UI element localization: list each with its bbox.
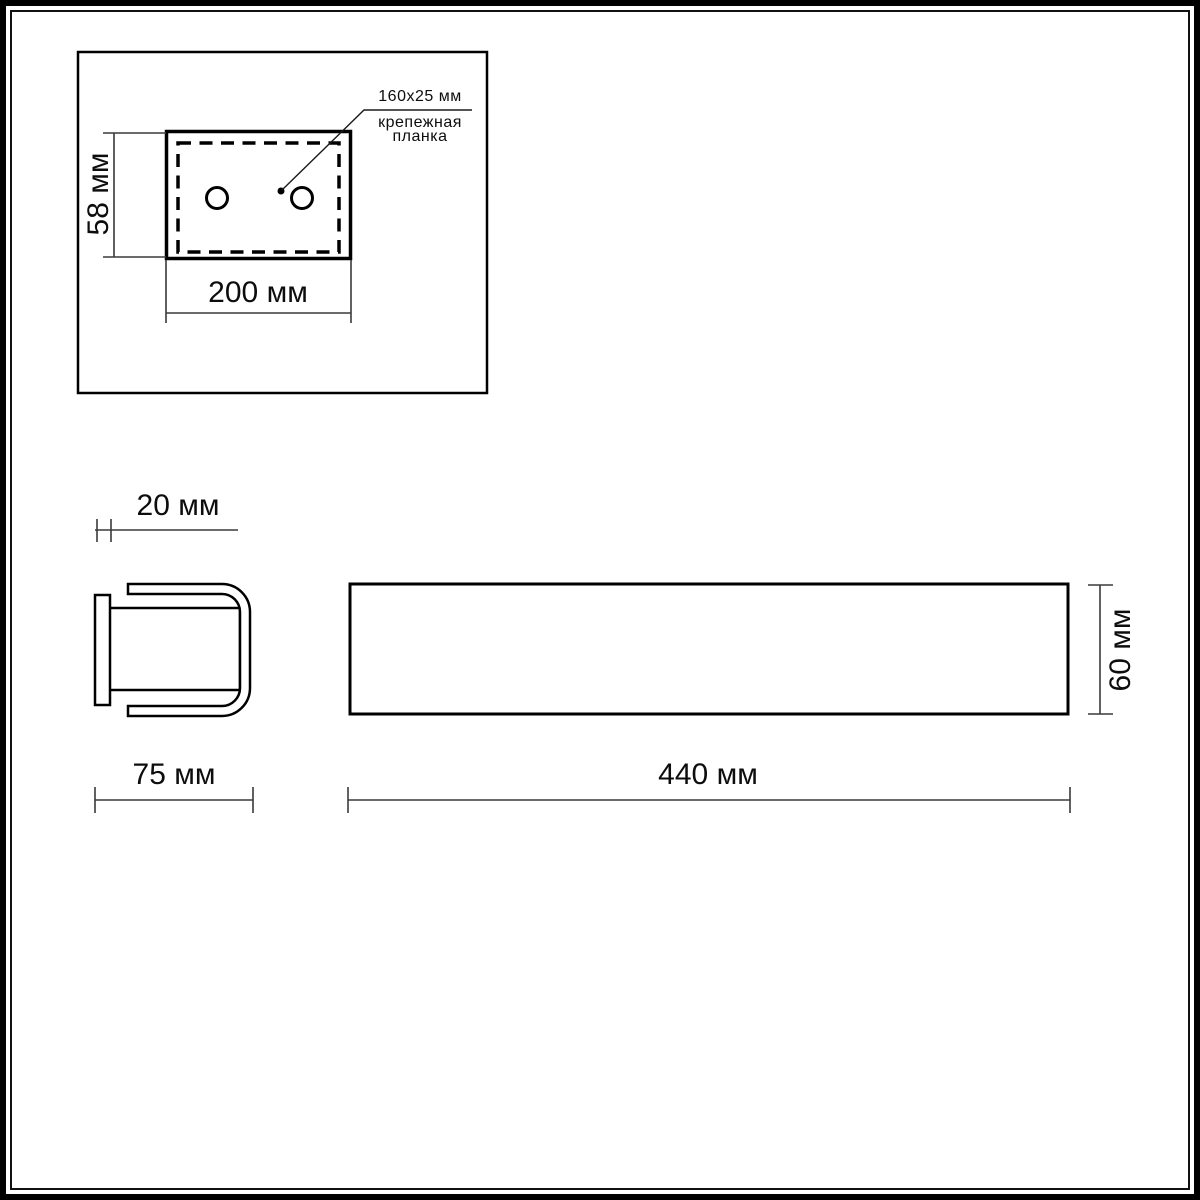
dim-label-58mm: 58 мм	[84, 153, 114, 236]
callout-name-label: крепежная планка	[378, 116, 462, 144]
callout-name-line2: планка	[378, 130, 462, 144]
dim-label-440mm: 440 мм	[658, 760, 758, 790]
callout-size-label: 160x25 мм	[378, 89, 461, 105]
dimension-drawing-page: 58 мм 200 мм 160x25 мм крепежная планка …	[0, 0, 1200, 1200]
front-view-outline	[350, 584, 1068, 714]
dim-label-20mm: 20 мм	[137, 491, 220, 521]
screw-hole-right	[292, 188, 313, 209]
mounting-plate-dashed-outline	[178, 143, 339, 252]
dim-label-200mm: 200 мм	[208, 278, 308, 308]
dim-label-60mm: 60 мм	[1106, 609, 1136, 692]
side-wall-plate	[95, 595, 110, 705]
screw-hole-left	[207, 188, 228, 209]
drawing-canvas	[0, 0, 1200, 1200]
side-body-outline	[109, 608, 240, 690]
dim-label-75mm: 75 мм	[133, 760, 216, 790]
